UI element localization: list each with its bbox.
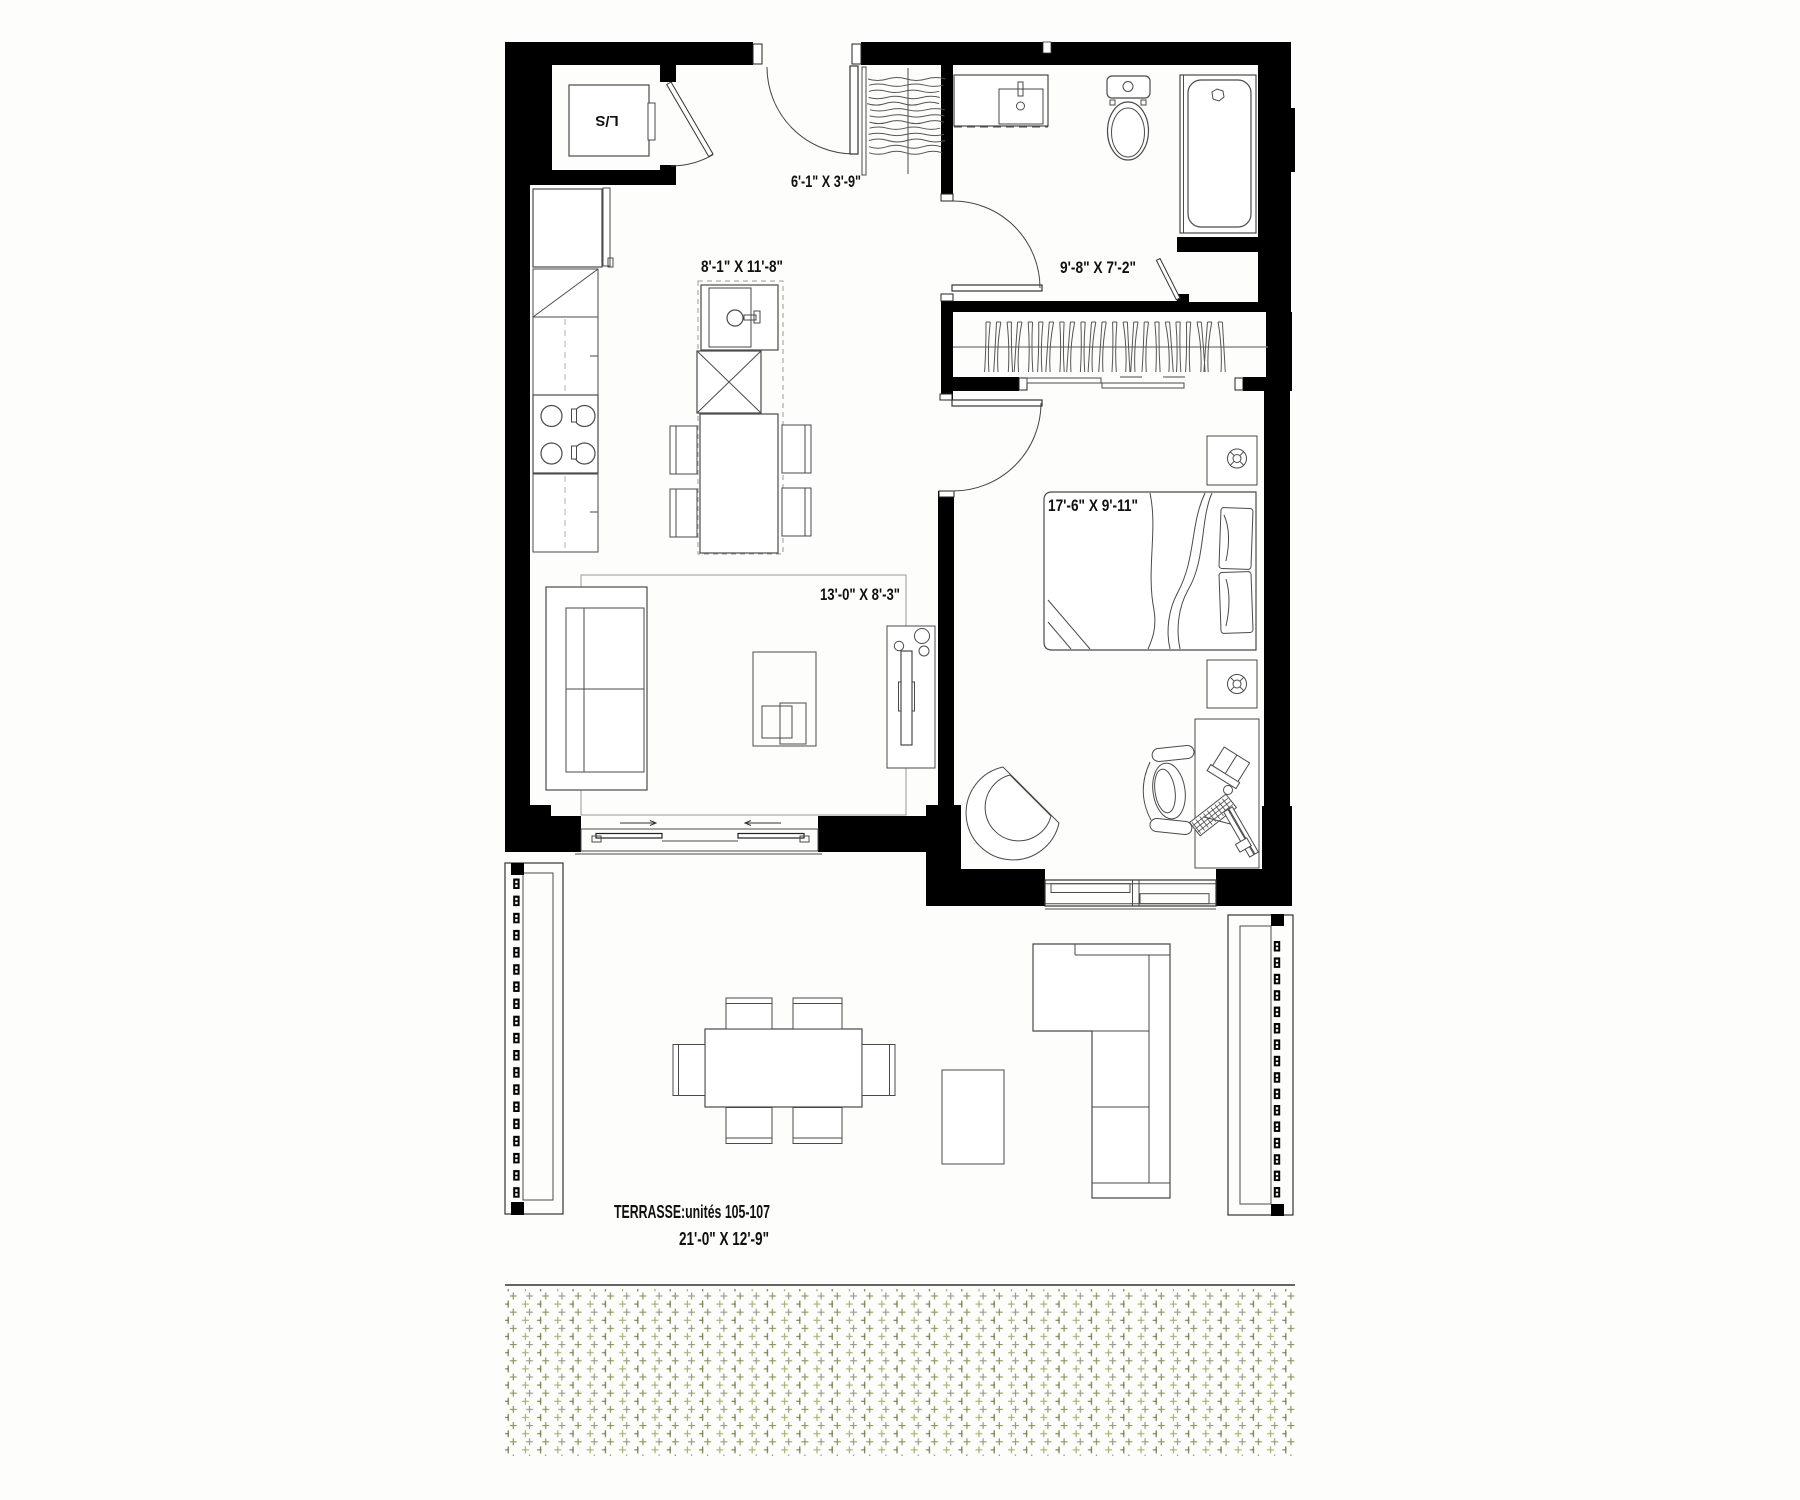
svg-text:9'-8" X 7'-2": 9'-8" X 7'-2" xyxy=(1060,258,1136,277)
svg-text:8'-1" X 11'-8": 8'-1" X 11'-8" xyxy=(701,257,783,276)
svg-text:13'-0" X 8'-3": 13'-0" X 8'-3" xyxy=(820,585,900,604)
svg-text:6'-1" X 3'-9": 6'-1" X 3'-9" xyxy=(791,172,861,191)
svg-text:21'-0" X 12'-9": 21'-0" X 12'-9" xyxy=(679,1229,769,1249)
svg-text:L/S: L/S xyxy=(595,112,618,129)
svg-text:TERRASSE:unités 105-107: TERRASSE:unités 105-107 xyxy=(614,1202,770,1222)
svg-text:17'-6" X 9'-11": 17'-6" X 9'-11" xyxy=(1048,496,1138,515)
